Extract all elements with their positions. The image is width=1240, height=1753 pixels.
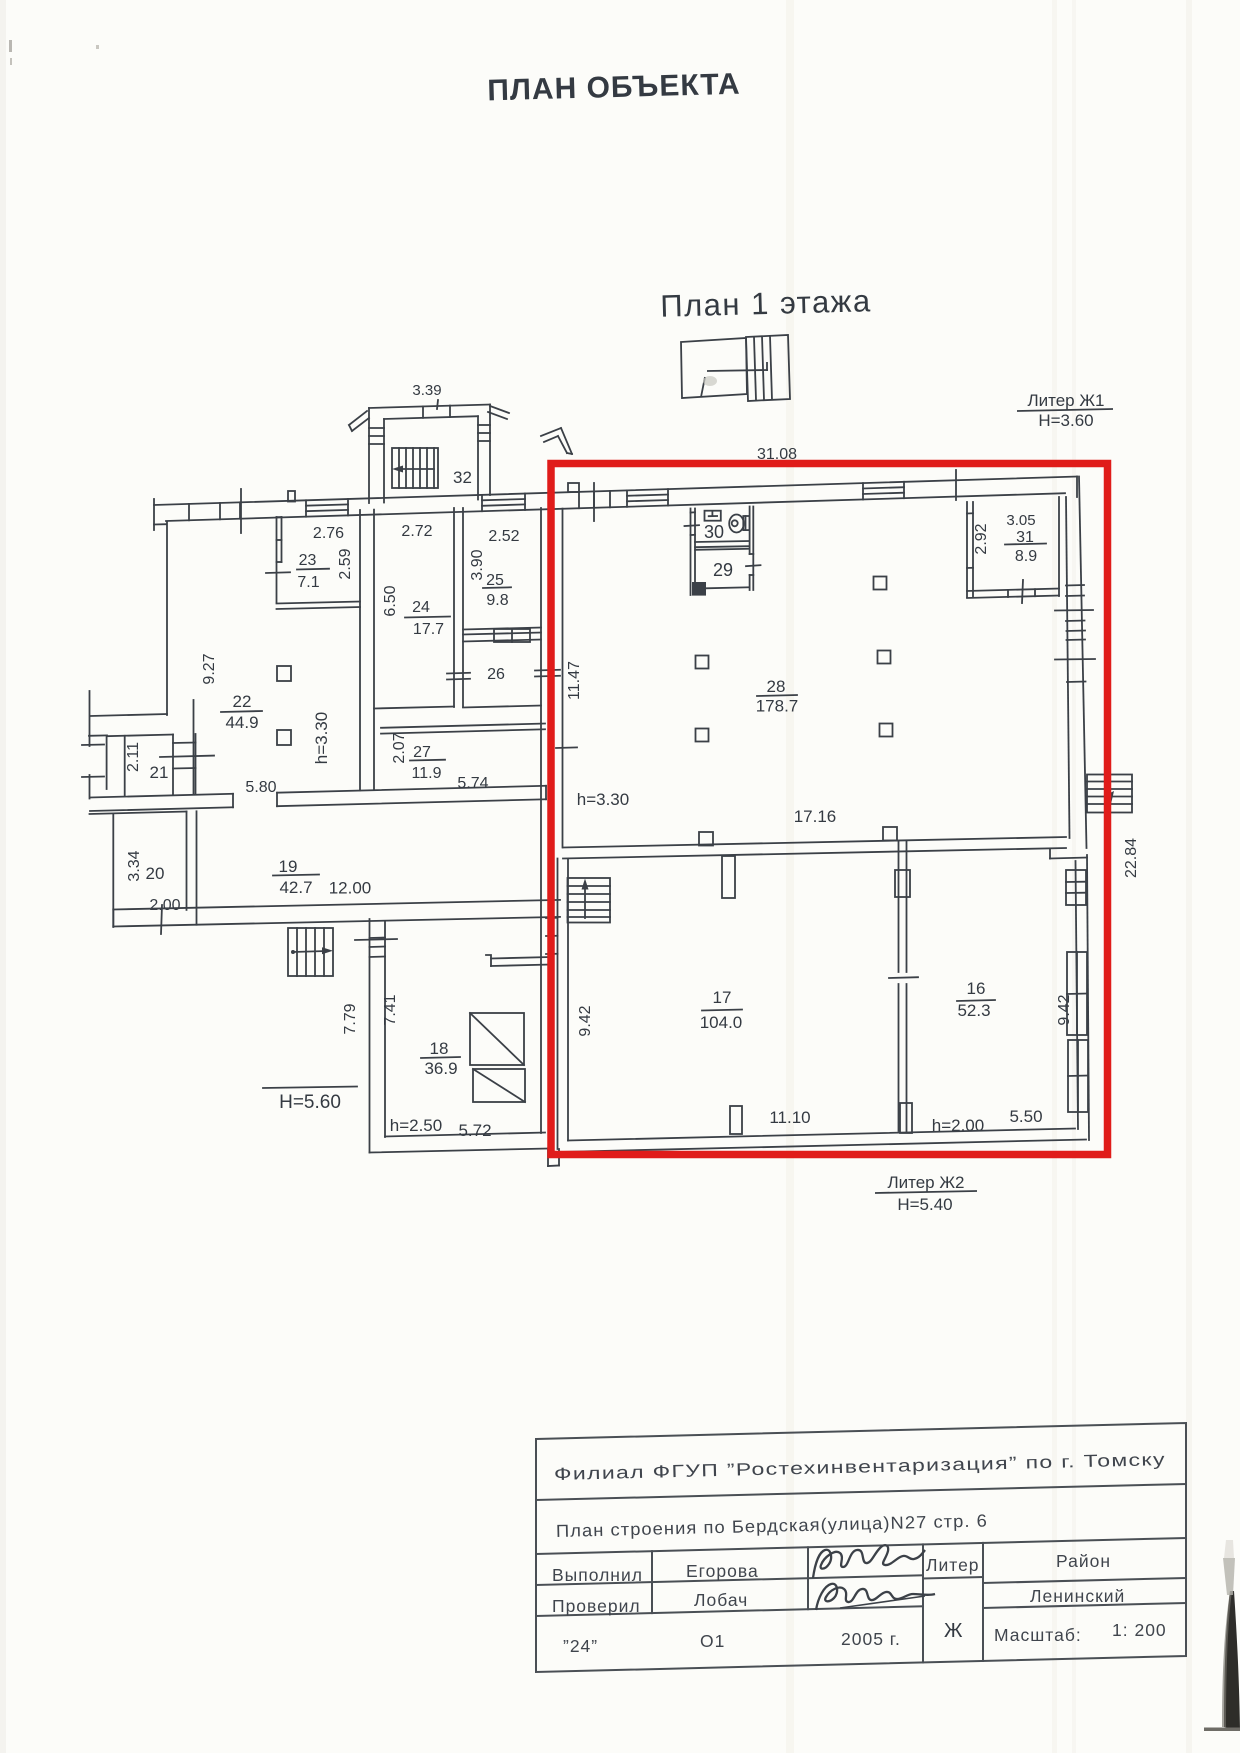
svg-text:11.47: 11.47 [566,661,583,700]
svg-text:Литер Ж1: Литер Ж1 [1027,391,1104,410]
svg-text:22.84: 22.84 [1123,838,1140,878]
svg-text:30: 30 [704,522,724,542]
svg-text:32: 32 [453,468,472,487]
svg-text:26: 26 [487,666,505,683]
svg-text:11.9: 11.9 [412,765,442,782]
svg-text:3.39: 3.39 [412,382,441,399]
svg-text:Масштаб:: Масштаб: [994,1625,1082,1645]
svg-text:2.00: 2.00 [149,897,180,914]
svg-text:9.8: 9.8 [486,592,508,609]
svg-text:Н=3.60: Н=3.60 [1038,411,1093,430]
svg-text:2.92: 2.92 [973,523,990,554]
svg-text:5.72: 5.72 [458,1121,491,1140]
svg-text:Лобач: Лобач [694,1590,748,1610]
svg-text:”24”: ”24” [563,1636,598,1656]
svg-text:22: 22 [233,692,252,711]
svg-text:Выполнил: Выполнил [552,1565,643,1585]
svg-text:36.9: 36.9 [424,1059,457,1078]
svg-text:ПЛАН ОБЪЕКТА: ПЛАН ОБЪЕКТА [487,68,741,108]
svg-text:5.80: 5.80 [245,779,276,796]
svg-text:6.50: 6.50 [382,585,399,616]
svg-text:3.05: 3.05 [1006,512,1035,529]
svg-text:178.7: 178.7 [756,697,799,716]
svg-text:h=2.50: h=2.50 [390,1116,442,1135]
svg-text:104.0: 104.0 [700,1013,743,1032]
svg-text:16: 16 [967,979,986,998]
svg-text:Район: Район [1056,1551,1111,1571]
svg-text:19: 19 [279,857,298,876]
svg-text:52.3: 52.3 [957,1001,990,1020]
svg-text:20: 20 [146,864,165,883]
svg-text:Н=5.40: Н=5.40 [897,1195,952,1214]
svg-text:11.10: 11.10 [769,1108,810,1127]
svg-text:2.52: 2.52 [488,528,519,545]
svg-text:1: 200: 1: 200 [1112,1620,1167,1640]
svg-text:3.34: 3.34 [126,850,143,881]
svg-text:План 1 этажа: План 1 этажа [660,283,872,324]
svg-text:17.16: 17.16 [794,807,837,826]
svg-text:27: 27 [413,744,431,761]
svg-text:17.7: 17.7 [413,621,444,638]
svg-text:Егорова: Егорова [686,1561,759,1581]
svg-text:О1: О1 [700,1631,725,1651]
svg-text:44.9: 44.9 [225,713,258,732]
svg-text:24: 24 [412,599,430,616]
svg-text:Ж: Ж [944,1620,963,1642]
svg-text:2.07: 2.07 [391,732,408,763]
svg-text:Литер Ж2: Литер Ж2 [887,1173,964,1192]
svg-text:9.42: 9.42 [1056,994,1073,1025]
svg-text:H=5.60: H=5.60 [279,1092,341,1113]
svg-text:8.9: 8.9 [1015,548,1037,565]
svg-text:5.50: 5.50 [1009,1107,1042,1126]
svg-text:h=3.30: h=3.30 [577,790,629,809]
svg-text:21: 21 [150,763,169,782]
svg-text:Проверил: Проверил [552,1596,641,1616]
svg-text:9.42: 9.42 [577,1005,594,1036]
svg-text:23: 23 [299,552,317,569]
svg-text:2.59: 2.59 [337,548,354,579]
svg-text:29: 29 [713,560,733,580]
svg-text:7.79: 7.79 [342,1003,359,1034]
svg-text:2.72: 2.72 [401,523,432,540]
svg-text:18: 18 [430,1039,449,1058]
svg-text:3.90: 3.90 [469,549,486,580]
svg-text:25: 25 [486,572,504,589]
svg-text:Ленинский: Ленинский [1030,1586,1125,1606]
svg-text:9.27: 9.27 [201,653,218,684]
svg-text:5.74: 5.74 [457,775,488,792]
svg-text:2005 г.: 2005 г. [841,1629,901,1649]
svg-text:2.76: 2.76 [313,525,344,542]
svg-text:17: 17 [713,988,732,1007]
svg-text:7.41: 7.41 [382,994,399,1025]
svg-text:h=3.30: h=3.30 [312,712,331,764]
svg-text:12.00: 12.00 [329,879,372,898]
svg-text:42.7: 42.7 [279,878,312,897]
svg-text:28: 28 [767,677,786,696]
svg-text:Литер: Литер [926,1555,980,1575]
svg-text:7.1: 7.1 [297,574,319,591]
svg-text:2.11: 2.11 [125,742,142,772]
